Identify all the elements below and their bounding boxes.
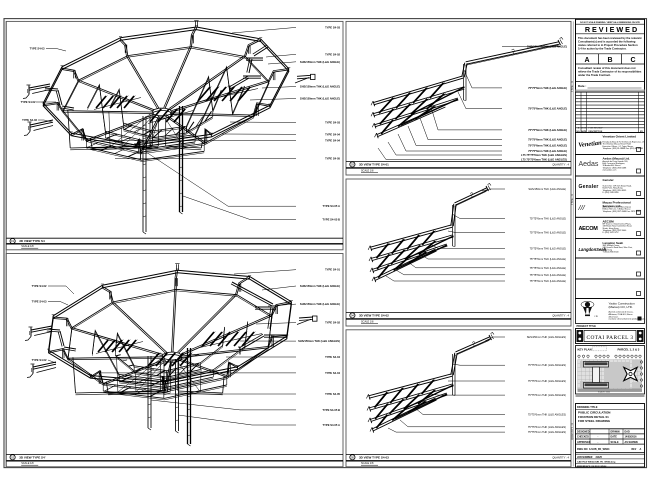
svg-text:SCALE 1/8: SCALE 1/8 <box>361 169 374 172</box>
svg-text:TYPE S4-05 B: TYPE S4-05 B <box>322 218 340 222</box>
svg-text:75*75*6mm THK (L&G ANGLE): 75*75*6mm THK (L&G ANGLE) <box>530 266 567 270</box>
svg-text:3D VIEW TYPE S4-01: 3D VIEW TYPE S4-01 <box>359 162 389 166</box>
svg-text:SCALE 1/8: SCALE 1/8 <box>21 462 34 465</box>
svg-text:75*75*6mm THK (L&G ANGLE): 75*75*6mm THK (L&G ANGLE) <box>528 86 567 90</box>
svg-text:CHECKED: CHECKED <box>577 436 589 439</box>
svg-text:75*75*6mm THK (L&G ANGLE): 75*75*6mm THK (L&G ANGLE) <box>528 138 567 142</box>
svg-text:QUANTITY : 4: QUANTITY : 4 <box>552 162 569 166</box>
svg-text:03: 03 <box>351 163 355 167</box>
svg-text:SHS/150mm THK (L&G ANGLE): SHS/150mm THK (L&G ANGLE) <box>300 85 340 89</box>
svg-text:TYPE S4-01: TYPE S4-01 <box>325 268 340 272</box>
svg-text:SCALE: SCALE <box>611 441 620 444</box>
svg-text:Consultants(s) and is accorded: Consultants(s) and is accorded the follo… <box>578 39 636 43</box>
svg-text:QUANTITY : 4: QUANTITY : 4 <box>552 455 569 459</box>
svg-text:75*75*6mm THK (L&G ANGLES): 75*75*6mm THK (L&G ANGLES) <box>528 425 566 429</box>
svg-text:TYPE S4-05: TYPE S4-05 <box>325 392 340 396</box>
svg-text:Gensler: Gensler <box>579 184 599 190</box>
svg-text:F: (852) 3922 9797: F: (852) 3922 9797 <box>603 232 619 234</box>
svg-text:relieve the Trade Contractor o: relieve the Trade Contractor of its resp… <box>578 69 642 73</box>
svg-text:05: 05 <box>351 455 355 459</box>
svg-text:COTAI PARCEL 3: COTAI PARCEL 3 <box>587 335 634 341</box>
svg-text:L75 75*75*6mm THK (L&G ANGLES): L75 75*75*6mm THK (L&G ANGLES) <box>521 153 567 157</box>
svg-text:TYPE - 4: TYPE - 4 <box>570 194 574 205</box>
svg-text:(Macau) CO, LTD.: (Macau) CO, LTD. <box>609 305 633 309</box>
svg-text:SCALE 1:2000: SCALE 1:2000 <box>598 390 610 393</box>
svg-text:R E V I E W E D: R E V I E W E D <box>585 25 637 34</box>
svg-text:5.4 for action by the Trade Co: 5.4 for action by the Trade Contractor. <box>578 47 627 51</box>
svg-text:TYPE S4-04: TYPE S4-04 <box>325 132 340 136</box>
svg-text:75*75*6mm THK (L&G ANGLES): 75*75*6mm THK (L&G ANGLES) <box>528 393 566 397</box>
svg-text:Venetian Orient Limited: Venetian Orient Limited <box>603 135 637 139</box>
svg-text:SHS/150mm THK (L&G ANGLE): SHS/150mm THK (L&G ANGLE) <box>528 187 566 191</box>
svg-text:75*75*6mm THK (L&G ANGLE): 75*75*6mm THK (L&G ANGLE) <box>528 107 567 111</box>
svg-text:75*75*6mm THK (L&G ANGLE): 75*75*6mm THK (L&G ANGLE) <box>530 257 567 261</box>
svg-text:A: A <box>584 57 589 64</box>
svg-text:status referred to in Project: status referred to in Project Procedure … <box>578 43 638 47</box>
svg-text:QUANTITY : 4: QUANTITY : 4 <box>552 313 569 317</box>
svg-text:DRAWING TITLE: DRAWING TITLE <box>577 405 598 409</box>
svg-text:under the Trade Contract.: under the Trade Contract. <box>578 73 611 77</box>
svg-text:02: 02 <box>11 455 15 459</box>
svg-text:APPROVED: APPROVED <box>577 441 591 444</box>
svg-text:TYPE S4-02: TYPE S4-02 <box>22 118 37 122</box>
svg-text:75*75*6mm THK (L&G ANGLE): 75*75*6mm THK (L&G ANGLE) <box>530 217 567 221</box>
svg-text:SCALE 1/8: SCALE 1/8 <box>361 462 374 465</box>
svg-text:REFERENCE ON FILE WS04: REFERENCE ON FILE WS04 <box>577 465 607 468</box>
svg-text:75*75*6mm THK (L&G ANGLE): 75*75*6mm THK (L&G ANGLE) <box>528 143 567 147</box>
svg-text:JOB NUMBER: JOB NUMBER <box>577 457 593 459</box>
svg-text:3D VIEW TYPE S4: 3D VIEW TYPE S4 <box>19 239 45 243</box>
svg-text:DATE: DATE <box>611 436 618 439</box>
svg-text:TYPE S4-05 A: TYPE S4-05 A <box>322 423 340 427</box>
svg-text:TYPE S4-02: TYPE S4-02 <box>32 358 47 362</box>
svg-text:A: A <box>640 448 642 451</box>
svg-text:75*75*6mm THK (L&G ANGLES): 75*75*6mm THK (L&G ANGLES) <box>528 379 566 383</box>
svg-text:TYPE S4-02: TYPE S4-02 <box>21 100 36 104</box>
svg-text:LTD: LTD <box>595 316 599 318</box>
svg-text:05/13: 05/13 <box>581 128 587 130</box>
svg-text:3D VIEW TYPE S4-02: 3D VIEW TYPE S4-02 <box>359 313 389 317</box>
svg-text:FOR STEEL DRAWING: FOR STEEL DRAWING <box>578 419 611 423</box>
svg-text:SHS/150mm THK (L&G ANGLE): SHS/150mm THK (L&G ANGLE) <box>300 97 340 101</box>
svg-text:www.aedas.com: www.aedas.com <box>603 170 617 172</box>
svg-text:TYPE S4-03: TYPE S4-03 <box>325 25 340 29</box>
svg-text:DRAWN: DRAWN <box>611 431 620 434</box>
svg-text:DWG NO: DWG NO <box>577 448 588 451</box>
svg-text:Date :: Date : <box>578 84 586 88</box>
svg-text:75*75*6mm THK (L&G ANGLES): 75*75*6mm THK (L&G ANGLES) <box>528 363 566 367</box>
svg-text:75*75*6mm THK (L&G ANGLE): 75*75*6mm THK (L&G ANGLE) <box>530 246 567 250</box>
svg-text:SHS/150mm THK (L&G ANGLE): SHS/150mm THK (L&G ANGLE) <box>300 284 340 288</box>
svg-text:Aedas: Aedas <box>579 161 599 168</box>
svg-text:SHS/150mm THK (L&G ANGLES): SHS/150mm THK (L&G ANGLES) <box>298 339 340 343</box>
svg-text:TYPE S4-05 B: TYPE S4-05 B <box>322 408 340 412</box>
svg-text:PROJECT TITLE: PROJECT TITLE <box>577 325 597 328</box>
svg-text:TYPE S4-03: TYPE S4-03 <box>30 46 45 50</box>
svg-text:DO NOT SCALE DRAWING. VERIFY A: DO NOT SCALE DRAWING. VERIFY ALL DIMENSI… <box>580 21 640 24</box>
svg-text:TYPE S4-02: TYPE S4-02 <box>325 321 340 325</box>
svg-text:AS SHOWN: AS SHOWN <box>625 441 638 444</box>
svg-text:FOR REVIEW: FOR REVIEW <box>589 128 604 130</box>
svg-text:B: B <box>607 57 612 64</box>
svg-text:04: 04 <box>351 314 355 318</box>
svg-text:CAD FILE WS04-SUB_FD_WS04.dwg: CAD FILE WS04-SUB_FD_WS04.dwg <box>577 461 616 464</box>
svg-text:01: 01 <box>11 239 15 243</box>
svg-text:SCALE 1/8: SCALE 1/8 <box>361 320 374 323</box>
svg-text:TYPE S4-04: TYPE S4-04 <box>325 139 340 143</box>
svg-text:QUANTITY : 4: QUANTITY : 4 <box>570 423 574 440</box>
svg-text:Consultant review of this docu: Consultant review of this document does … <box>578 66 636 70</box>
svg-text:SCALE 1/8: SCALE 1/8 <box>21 245 34 248</box>
svg-text:75*75*6mm THK (L&G ANGLE): 75*75*6mm THK (L&G ANGLE) <box>530 279 567 283</box>
svg-text:75*75*6mm THK (L&G ANGLE): 75*75*6mm THK (L&G ANGLE) <box>530 231 567 235</box>
svg-text:TYPE S4-04: TYPE S4-04 <box>325 355 340 359</box>
svg-text:Telephone: (853) 2875 3088 Fa: Telephone: (853) 2875 3088 Fax: 2875 308… <box>603 211 640 213</box>
svg-text:TYPE S4-05: TYPE S4-05 <box>325 157 340 161</box>
svg-text:This document has been reviewe: This document has been reviewed by the r… <box>578 36 642 40</box>
svg-text:3D VIEW TYPE S4': 3D VIEW TYPE S4' <box>19 455 46 459</box>
svg-text:C: C <box>630 57 635 64</box>
svg-text:14/03/2016: 14/03/2016 <box>625 436 638 439</box>
svg-text:SHS/150mm THK (L&G ANGLE): SHS/150mm THK (L&G ANGLE) <box>527 44 567 48</box>
svg-text:AECOM: AECOM <box>579 226 599 232</box>
svg-text:75*75*6mm THK (L&G ANGLE): 75*75*6mm THK (L&G ANGLE) <box>528 149 567 153</box>
svg-text:75*75*6mm THK (L&G ANGLE): 75*75*6mm THK (L&G ANGLE) <box>530 273 567 277</box>
svg-text:SHS/150mm THK (L&G ANGLES): SHS/150mm THK (L&G ANGLES) <box>527 335 566 339</box>
svg-text:F: (852) 2810 8399: F: (852) 2810 8399 <box>603 192 619 194</box>
svg-text:3-SUB_FD_WS04: 3-SUB_FD_WS04 <box>589 448 610 451</box>
svg-text:SHS/150mm THK (L&G ANGLE): SHS/150mm THK (L&G ANGLE) <box>300 60 340 64</box>
svg-text:TYPE S4-04: TYPE S4-04 <box>325 371 340 375</box>
svg-text:SHS/150mm THK (L&G ANGLE): SHS/150mm THK (L&G ANGLE) <box>300 302 340 306</box>
svg-text:31325: 31325 <box>596 457 603 459</box>
svg-text:TYPE S4-02: TYPE S4-02 <box>325 52 340 56</box>
svg-text:TYPE S4-02: TYPE S4-02 <box>32 284 47 288</box>
svg-text:DAD: DAD <box>625 431 630 434</box>
svg-text:REV: REV <box>632 449 637 451</box>
svg-text:T: (852) 2830 3500: T: (852) 2830 3500 <box>603 252 619 254</box>
svg-text:DESIGNED: DESIGNED <box>577 431 590 434</box>
svg-text:75*75*6mm THK (L&G ANGLES): 75*75*6mm THK (L&G ANGLES) <box>528 413 566 417</box>
svg-text:3D VIEW TYPE S4-03: 3D VIEW TYPE S4-03 <box>359 455 389 459</box>
svg-text:75*75*6mm THK (L&G ANGLES): 75*75*6mm THK (L&G ANGLES) <box>528 430 566 434</box>
svg-text:​///: ​/// <box>578 203 586 212</box>
svg-text:TYPE S4-03: TYPE S4-03 <box>325 121 340 125</box>
svg-text:KEY PLAN: KEY PLAN <box>578 348 592 352</box>
svg-text:Gensler: Gensler <box>603 178 615 182</box>
svg-text:TYPE - 4: TYPE - 4 <box>570 81 574 92</box>
svg-text:TYPE S4-05 A: TYPE S4-05 A <box>322 204 340 208</box>
svg-text:75*75*6mm THK (L&G ANGLE): 75*75*6mm THK (L&G ANGLE) <box>528 128 567 132</box>
svg-text:TYPE S4-03: TYPE S4-03 <box>32 299 47 303</box>
svg-text:PARCEL 1, 2 & 3: PARCEL 1, 2 & 3 <box>618 348 640 352</box>
svg-text:L75 75*75*6mm THK (L&G ANGLES): L75 75*75*6mm THK (L&G ANGLES) <box>521 158 567 162</box>
